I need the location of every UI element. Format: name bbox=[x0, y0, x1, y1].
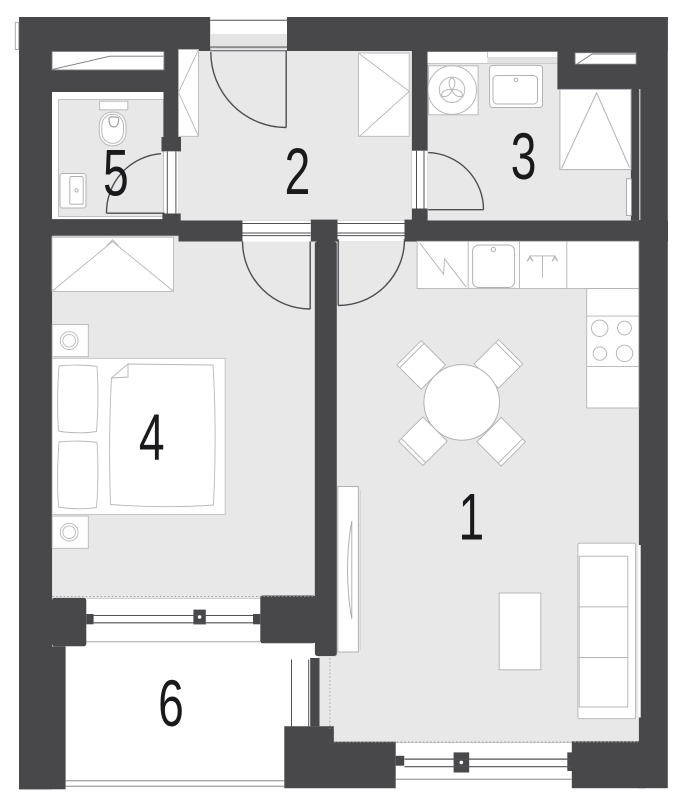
svg-text:1: 1 bbox=[458, 480, 484, 554]
svg-text:2: 2 bbox=[285, 135, 311, 209]
svg-text:4: 4 bbox=[139, 401, 165, 475]
svg-text:6: 6 bbox=[158, 667, 184, 741]
svg-text:5: 5 bbox=[103, 136, 129, 210]
svg-text:3: 3 bbox=[511, 120, 537, 194]
